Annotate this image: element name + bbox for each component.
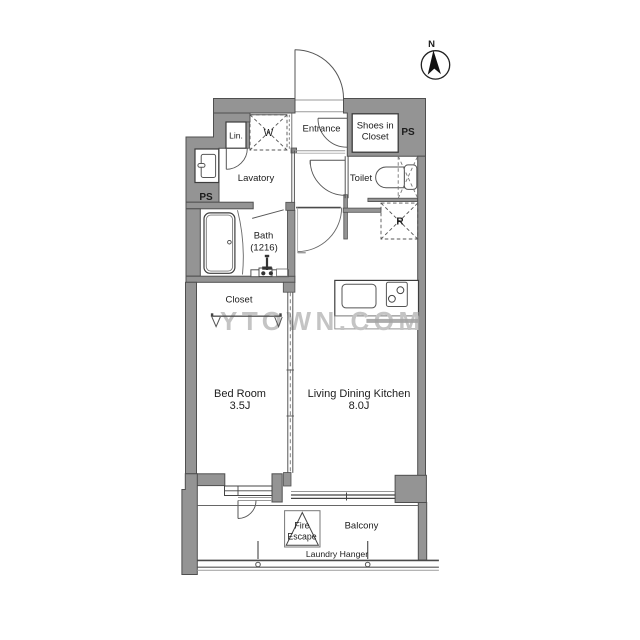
svg-text:Shoes in: Shoes in (357, 121, 394, 132)
svg-text:Lin.: Lin. (229, 131, 243, 141)
svg-text:Lavatory: Lavatory (238, 173, 275, 184)
svg-text:Living Dining Kitchen: Living Dining Kitchen (308, 388, 411, 400)
svg-text:PS: PS (199, 192, 213, 203)
svg-text:N: N (428, 39, 435, 50)
svg-text:Balcony: Balcony (345, 521, 379, 532)
svg-text:Toilet: Toilet (350, 173, 373, 184)
svg-text:Bed Room: Bed Room (214, 388, 266, 400)
svg-text:W: W (264, 128, 274, 139)
svg-text:Entrance: Entrance (302, 124, 340, 135)
svg-text:Fire: Fire (294, 521, 309, 531)
svg-text:PS: PS (401, 127, 415, 138)
svg-text:3.5J: 3.5J (230, 400, 251, 412)
svg-text:Laundry Hanger: Laundry Hanger (306, 549, 368, 559)
svg-text:Escape: Escape (287, 532, 316, 542)
svg-text:(1216): (1216) (250, 243, 277, 254)
svg-text:8.0J: 8.0J (349, 400, 370, 412)
svg-text:Bath: Bath (254, 231, 274, 242)
svg-text:R: R (396, 217, 404, 228)
svg-text:Closet: Closet (226, 295, 253, 306)
svg-text:Closet: Closet (362, 132, 389, 143)
